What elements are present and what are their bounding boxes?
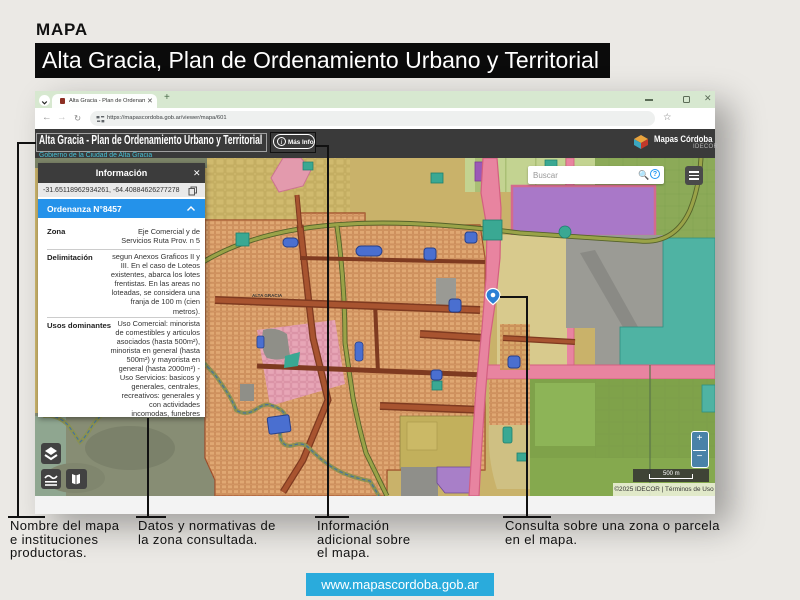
svg-text:ALTA GRACIA: ALTA GRACIA <box>252 293 283 298</box>
